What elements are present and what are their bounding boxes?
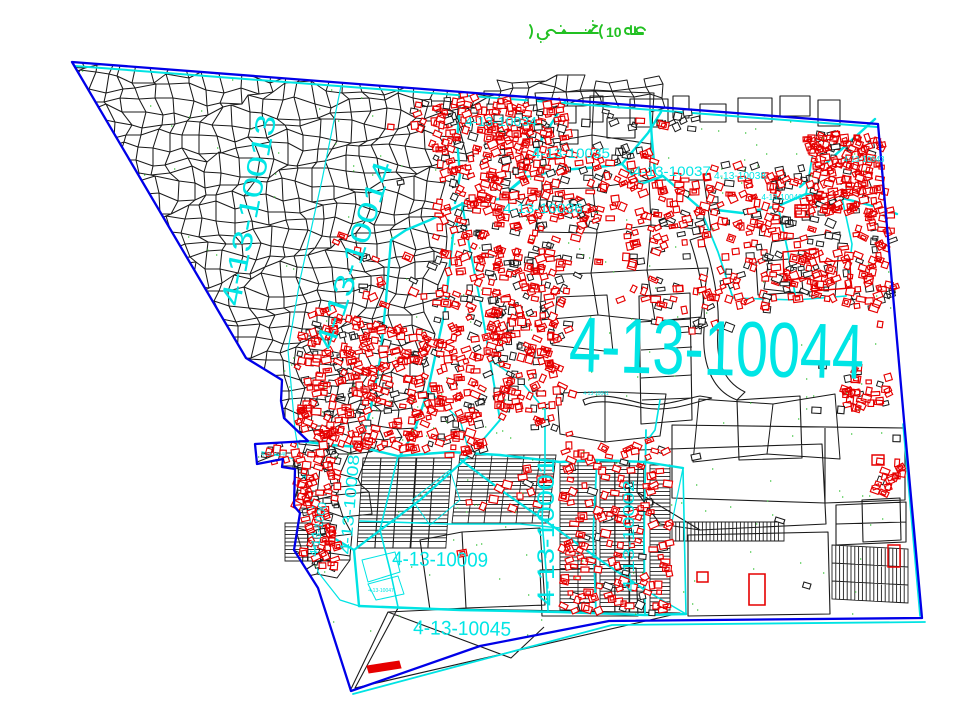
svg-text:4-13-10047: 4-13-10047 <box>368 588 394 594</box>
svg-text:4-13-10036: 4-13-10036 <box>503 200 583 216</box>
svg-text:4-13-10046: 4-13-10046 <box>261 452 287 458</box>
svg-text:4-13-10009: 4-13-10009 <box>392 548 488 572</box>
svg-text:4-13-10045: 4-13-10045 <box>413 617 511 641</box>
svg-text:4-13-10035: 4-13-10035 <box>532 145 610 161</box>
svg-text:4-13-10001: 4-13-10001 <box>533 458 560 606</box>
svg-text:4-13-10041: 4-13-10041 <box>583 391 609 397</box>
svg-text:10: 10 <box>606 24 622 40</box>
svg-text:4-13-10002: 4-13-10002 <box>621 480 638 592</box>
svg-text:4-13-10034: 4-13-10034 <box>465 114 537 129</box>
svg-text:4-13-10043: 4-13-10043 <box>844 155 885 164</box>
svg-text:4-13-10038: 4-13-10038 <box>714 171 766 182</box>
svg-text:4-13-10040: 4-13-10040 <box>762 193 803 202</box>
svg-text:4-13-10037: 4-13-10037 <box>633 163 711 179</box>
svg-text:4-13-10044: 4-13-10044 <box>568 300 865 396</box>
